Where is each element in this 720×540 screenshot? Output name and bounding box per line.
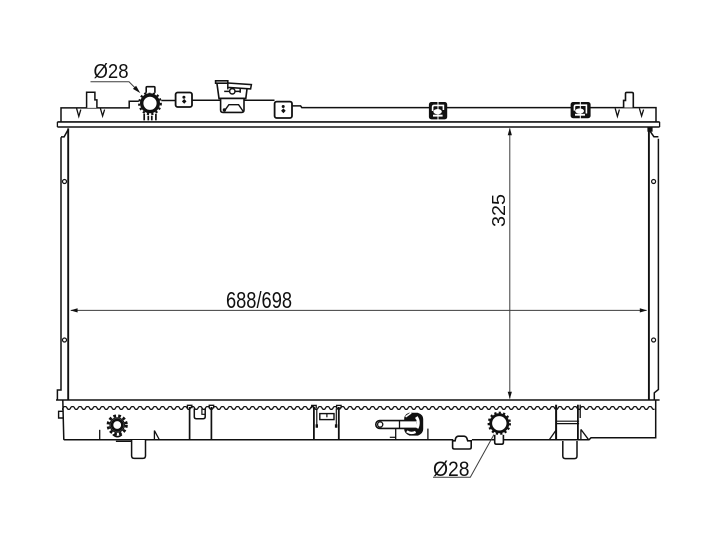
svg-text:688/698: 688/698 <box>226 287 292 313</box>
svg-text:325: 325 <box>488 194 509 227</box>
svg-text:Ø28: Ø28 <box>94 61 129 83</box>
